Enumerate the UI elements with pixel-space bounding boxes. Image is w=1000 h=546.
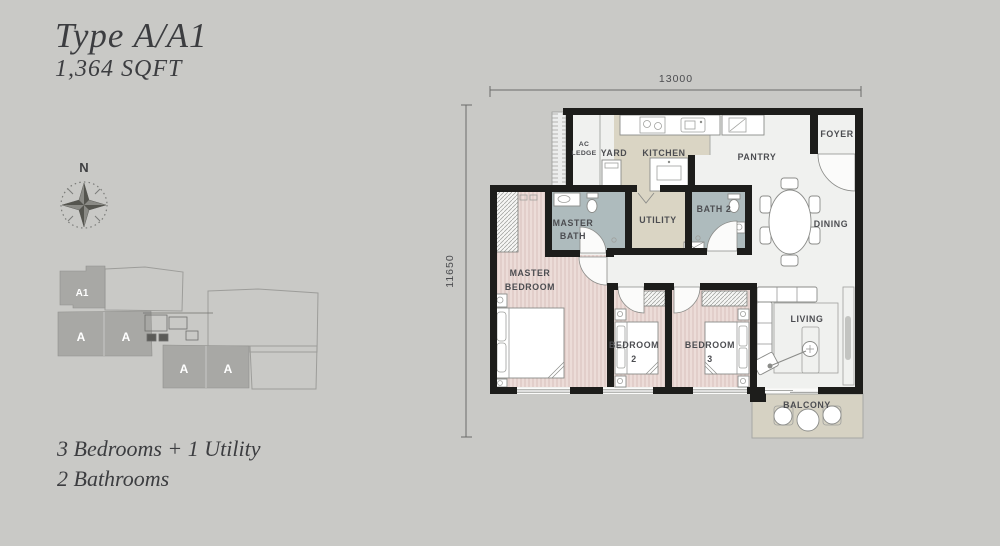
- room-label-master-bedroom: BEDROOM: [505, 282, 555, 292]
- key-plan-label-a: A: [180, 362, 189, 376]
- compass-north-label: N: [79, 160, 88, 175]
- dimension-width: 13000: [659, 73, 693, 85]
- room-label-bedroom3: BEDROOM: [685, 340, 735, 350]
- wardrobe-icon: [495, 190, 518, 252]
- floor-plan-canvas: N A1 A: [0, 0, 1000, 546]
- key-plan-outline-unit: [208, 289, 318, 352]
- room-label-living: LIVING: [791, 314, 824, 324]
- chair-icon: [781, 178, 798, 189]
- key-plan-label-a: A: [77, 330, 86, 344]
- key-plan-outline-unit: [105, 267, 183, 311]
- room-label-master-bedroom: MASTER: [510, 268, 551, 278]
- compass-rose-icon: [61, 182, 107, 228]
- bedroom3-furniture: [702, 291, 749, 387]
- dining-table-icon: [769, 190, 811, 254]
- window: [693, 388, 747, 394]
- washer-icon: [602, 160, 621, 186]
- nightstand-icon: [615, 376, 626, 387]
- nightstand-icon: [615, 309, 626, 320]
- window: [517, 388, 570, 394]
- room-label-bedroom3: 3: [707, 354, 713, 364]
- nightstand-icon: [738, 376, 749, 387]
- key-plan-label-a: A: [122, 330, 131, 344]
- room-label-kitchen: KITCHEN: [642, 148, 685, 158]
- table-icon: [797, 409, 819, 431]
- room-label-foyer: FOYER: [820, 129, 853, 139]
- room-label-master-bath: BATH: [560, 231, 586, 241]
- room-label-master-bath: MASTER: [553, 218, 594, 228]
- ac-unit-box: [750, 390, 766, 402]
- window: [603, 388, 653, 394]
- room-label-balcony: BALCONY: [783, 400, 831, 410]
- key-plan-core: [143, 313, 213, 341]
- room-label-yard: YARD: [601, 148, 628, 158]
- room-label-ac-ledge: LEDGE: [572, 150, 597, 157]
- chair-icon: [760, 196, 771, 213]
- sliding-door: [765, 389, 818, 394]
- chair-icon: [809, 196, 820, 213]
- room-label-ac-ledge: AC: [579, 141, 589, 148]
- ac-ledge-strip: [552, 112, 566, 190]
- floor-plan: AC LEDGE YARD KITCHEN PANTRY FOYER UTILI…: [490, 108, 863, 438]
- chair-icon: [781, 255, 798, 266]
- wardrobe-icon: [702, 291, 747, 306]
- room-label-bath2: BATH 2: [697, 204, 732, 214]
- key-plan: A1 A A A A: [58, 266, 318, 389]
- bed-icon: [494, 308, 564, 378]
- dimension-height: 11650: [444, 254, 456, 287]
- room-label-dining: DINING: [814, 219, 848, 229]
- key-plan-unit-a-pair-left: [58, 311, 152, 356]
- key-plan-unit-a1: [60, 266, 105, 308]
- room-label-bedroom2: BEDROOM: [609, 340, 659, 350]
- nightstand-icon: [738, 309, 749, 320]
- key-plan-label-a1: A1: [76, 288, 89, 299]
- room-label-bedroom2: 2: [631, 354, 637, 364]
- key-plan-label-a: A: [224, 362, 233, 376]
- toilet-icon: [587, 193, 598, 213]
- compass: N: [61, 160, 107, 228]
- room-label-utility: UTILITY: [639, 215, 676, 225]
- room-label-pantry: PANTRY: [738, 152, 777, 162]
